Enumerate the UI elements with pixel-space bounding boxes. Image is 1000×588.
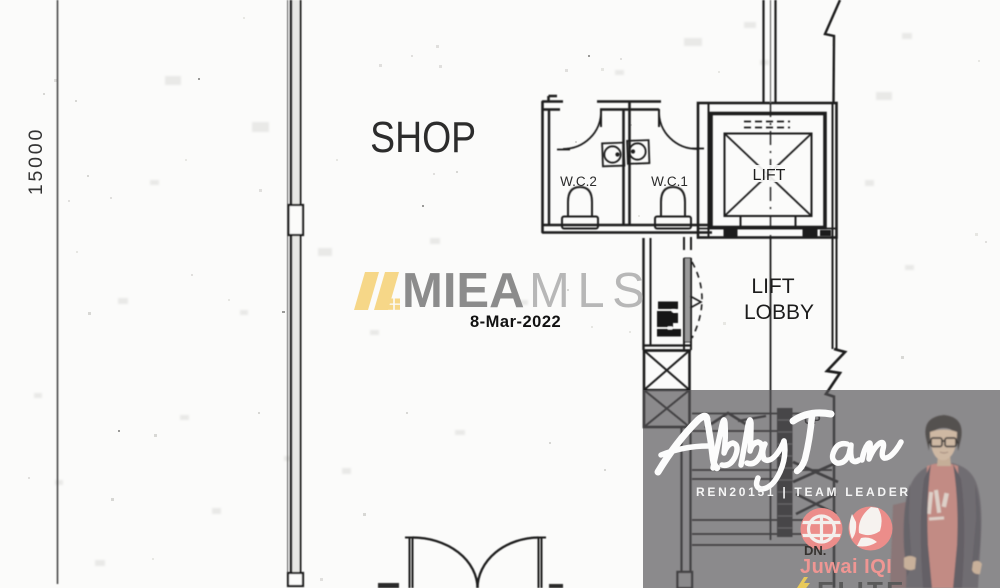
svg-text:LIFT: LIFT (753, 167, 786, 184)
svg-text:8-Mar-2022: 8-Mar-2022 (470, 313, 561, 331)
svg-text:Juwai IQI: Juwai IQI (800, 556, 892, 578)
svg-text:W.C.2: W.C.2 (560, 174, 597, 189)
svg-text:LIFT: LIFT (751, 275, 794, 298)
svg-text:ELITE: ELITE (817, 576, 907, 588)
svg-text:MIEA: MIEA (402, 264, 525, 318)
svg-text:LOBBY: LOBBY (744, 301, 814, 324)
svg-text:SHOP: SHOP (370, 112, 476, 161)
svg-text:MLS: MLS (529, 264, 652, 318)
svg-text:REN20151 | TEAM LEADER: REN20151 | TEAM LEADER (696, 485, 911, 499)
svg-text:W.C.1: W.C.1 (651, 174, 688, 189)
svg-text:15000: 15000 (25, 127, 47, 195)
